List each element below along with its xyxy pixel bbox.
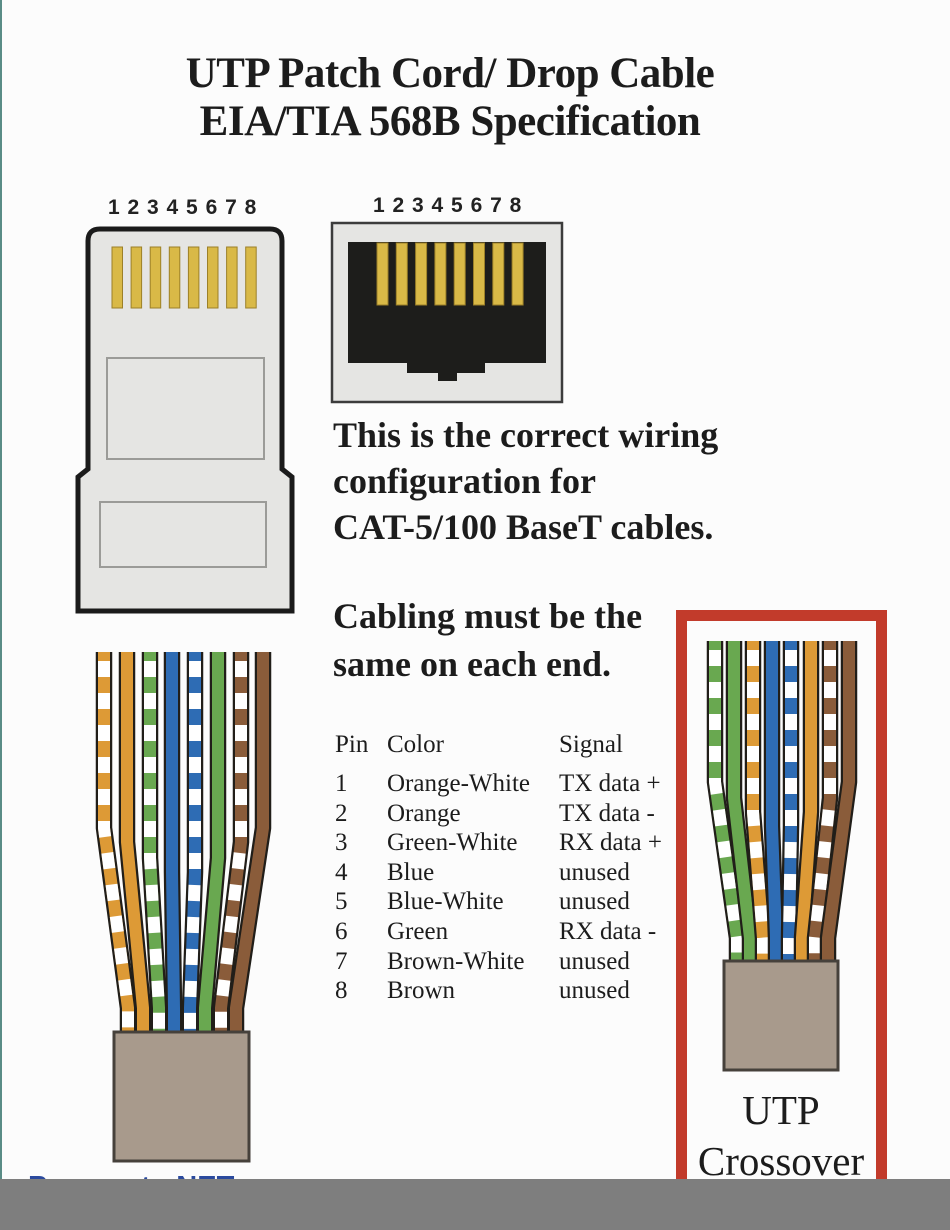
cell-color: Blue xyxy=(387,858,559,888)
wire-blue xyxy=(172,652,174,1050)
cell-pin: 4 xyxy=(335,858,387,888)
straight-cable-jacket xyxy=(114,1032,249,1161)
wiring-config-line2: configuration for xyxy=(333,458,718,504)
cell-pin: 3 xyxy=(335,828,387,858)
rj45-plug-body xyxy=(78,229,292,611)
pinout-table: Pin Color Signal 1Orange-WhiteTX data +2… xyxy=(335,731,704,1006)
jack-pin xyxy=(512,243,523,305)
cabling-note-line2: same on each end. xyxy=(333,640,642,688)
wiring-config-paragraph: This is the correct wiring configuration… xyxy=(333,412,718,550)
table-row: 1Orange-WhiteTX data + xyxy=(335,769,704,799)
crossover-label-line1: UTP xyxy=(686,1085,876,1136)
plug-pin-numbers: 1 2 3 4 5 6 7 8 xyxy=(108,196,257,220)
cell-pin: 1 xyxy=(335,769,387,799)
wiring-config-line3: CAT-5/100 BaseT cables. xyxy=(333,504,718,550)
cabling-note-paragraph: Cabling must be the same on each end. xyxy=(333,592,642,688)
bottom-gray-bar xyxy=(0,1179,950,1230)
plug-pin xyxy=(227,247,238,308)
cell-color: Green xyxy=(387,917,559,947)
cell-color: Blue-White xyxy=(387,887,559,917)
cell-signal: TX data + xyxy=(559,769,704,799)
cell-color: Orange xyxy=(387,799,559,829)
col-header-signal: Signal xyxy=(559,731,704,759)
wire-blue xyxy=(772,641,776,980)
plug-pin xyxy=(246,247,257,308)
cell-signal: unused xyxy=(559,887,704,917)
table-row: 4Blueunused xyxy=(335,858,704,888)
plug-pin xyxy=(131,247,142,308)
cell-signal: unused xyxy=(559,858,704,888)
cell-color: Green-White xyxy=(387,828,559,858)
crossover-cable-wires xyxy=(715,641,849,980)
plug-pin xyxy=(188,247,199,308)
cell-pin: 8 xyxy=(335,976,387,1006)
wiring-config-line1: This is the correct wiring xyxy=(333,412,718,458)
col-header-color: Color xyxy=(387,731,559,759)
jack-pin-numbers: 1 2 3 4 5 6 7 8 xyxy=(373,194,522,218)
cell-pin: 6 xyxy=(335,917,387,947)
table-row: 3Green-WhiteRX data + xyxy=(335,828,704,858)
jack-pin xyxy=(396,243,407,305)
cell-color: Orange-White xyxy=(387,769,559,799)
cell-signal: TX data - xyxy=(559,799,704,829)
cell-pin: 5 xyxy=(335,887,387,917)
jack-pin xyxy=(416,243,427,305)
jack-pin xyxy=(377,243,388,305)
page-title-line2: EIA/TIA 568B Specification xyxy=(0,98,900,146)
straight-cable-wires xyxy=(104,652,263,1050)
cell-color: Brown xyxy=(387,976,559,1006)
cell-signal: RX data - xyxy=(559,917,704,947)
table-row: 6GreenRX data - xyxy=(335,917,704,947)
cell-signal: unused xyxy=(559,947,704,977)
plug-pin xyxy=(150,247,161,308)
jack-pin xyxy=(474,243,485,305)
plug-pin xyxy=(208,247,219,308)
jack-pin xyxy=(493,243,504,305)
pinout-table-header: Pin Color Signal xyxy=(335,731,704,759)
cell-signal: unused xyxy=(559,976,704,1006)
crossover-cable-jacket xyxy=(724,961,838,1070)
plug-pin xyxy=(169,247,180,308)
pinout-table-rows: 1Orange-WhiteTX data +2OrangeTX data -3G… xyxy=(335,769,704,1006)
jack-pin xyxy=(435,243,446,305)
table-row: 2OrangeTX data - xyxy=(335,799,704,829)
cell-signal: RX data + xyxy=(559,828,704,858)
cell-pin: 2 xyxy=(335,799,387,829)
jack-pin xyxy=(454,243,465,305)
table-row: 5Blue-Whiteunused xyxy=(335,887,704,917)
cell-pin: 7 xyxy=(335,947,387,977)
table-row: 8Brownunused xyxy=(335,976,704,1006)
plug-pin xyxy=(112,247,123,308)
crossover-label: UTP Crossover xyxy=(686,1085,876,1187)
page-title: UTP Patch Cord/ Drop Cable EIA/TIA 568B … xyxy=(0,50,900,146)
col-header-pin: Pin xyxy=(335,731,387,759)
cell-color: Brown-White xyxy=(387,947,559,977)
cabling-note-line1: Cabling must be the xyxy=(333,592,642,640)
table-row: 7Brown-Whiteunused xyxy=(335,947,704,977)
page-title-line1: UTP Patch Cord/ Drop Cable xyxy=(0,50,900,98)
scan-edge-line xyxy=(0,0,2,1179)
wiring-diagram-page: UTP Patch Cord/ Drop Cable EIA/TIA 568B … xyxy=(0,0,950,1230)
